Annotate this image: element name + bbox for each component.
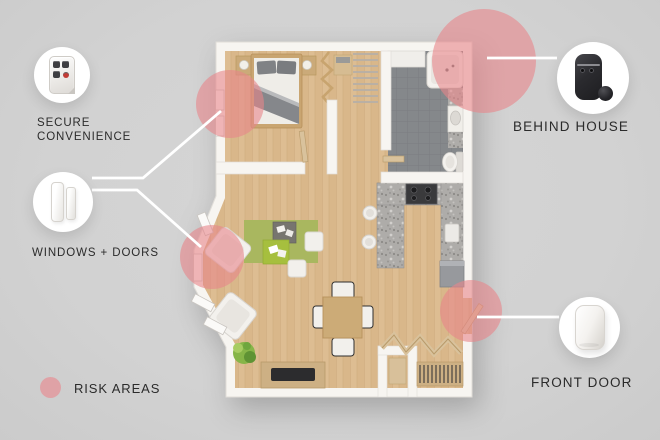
pillow (277, 61, 297, 75)
label-secure-convenience: SECURECONVENIENCE (37, 116, 131, 144)
outdoor-camera-icon (573, 54, 613, 102)
pillow (257, 60, 277, 74)
toilet-seat (446, 156, 455, 169)
fridge-top (440, 261, 464, 266)
bedroom-right-wall (327, 100, 337, 174)
pouf (288, 260, 306, 277)
camera-mount-ball (598, 86, 613, 101)
bathroom-bottom-wall (381, 172, 463, 183)
keyfob-panic-button (63, 72, 69, 78)
label-line2: CONVENIENCE (37, 131, 131, 143)
camera-sensor (589, 68, 594, 73)
shoe-cabinet (389, 358, 406, 384)
keyfob-button (62, 61, 69, 68)
device-circle-contact-sensor (33, 172, 93, 232)
risk-circle-living-windows (180, 225, 244, 289)
camera-lens (580, 68, 585, 73)
vanity-sink (451, 111, 461, 125)
risk-circle-front-door (440, 280, 502, 342)
risk-circle-behind-house (432, 9, 536, 113)
tv (271, 368, 315, 381)
line-sensor-to-living (92, 190, 201, 247)
pouf (305, 232, 323, 251)
bathroom-shelf (388, 51, 425, 67)
counter-right (441, 183, 463, 263)
sensor-magnet-bar (66, 187, 76, 220)
device-circle-keyfob (34, 47, 90, 103)
keyfob-remote-icon (49, 56, 75, 94)
device-circle-camera (557, 42, 629, 114)
keyfob-fold (68, 87, 75, 94)
label-windows-doors: WINDOWS + DOORS (32, 246, 159, 260)
label-line1: SECURE (37, 117, 90, 129)
bathroom-left-wall (381, 51, 391, 150)
label-behind-house: BEHIND HOUSE (513, 119, 629, 134)
dining-table (323, 297, 362, 338)
smart-home-risk-diagram: SECURECONVENIENCE WINDOWS + DOORS BEHIND… (0, 0, 660, 440)
kitchen-sink (445, 224, 459, 242)
door-window-sensor-icon (51, 182, 76, 222)
bathroom-door-leaf (383, 156, 404, 162)
bedroom-wall (216, 162, 305, 174)
keyfob-button (53, 71, 60, 78)
stove (406, 184, 437, 204)
risk-circle-bedroom-window (196, 70, 264, 138)
lamp (240, 61, 249, 70)
device-circle-motion-sensor (559, 297, 620, 358)
label-front-door: FRONT DOOR (531, 375, 633, 390)
bath-counter-2 (448, 132, 463, 148)
entry-wall (408, 346, 417, 397)
lamp (303, 61, 312, 70)
keyfob-button (53, 61, 60, 68)
camera-seam (577, 64, 600, 66)
motion-sensor-icon (575, 305, 605, 350)
dining-chair (332, 282, 354, 299)
sensor-main-bar (51, 182, 64, 222)
risk-areas-legend-dot (40, 377, 61, 398)
closet-cabinet-top (336, 57, 350, 63)
dining-chair (332, 338, 354, 356)
label-risk-areas: RISK AREAS (74, 381, 160, 396)
